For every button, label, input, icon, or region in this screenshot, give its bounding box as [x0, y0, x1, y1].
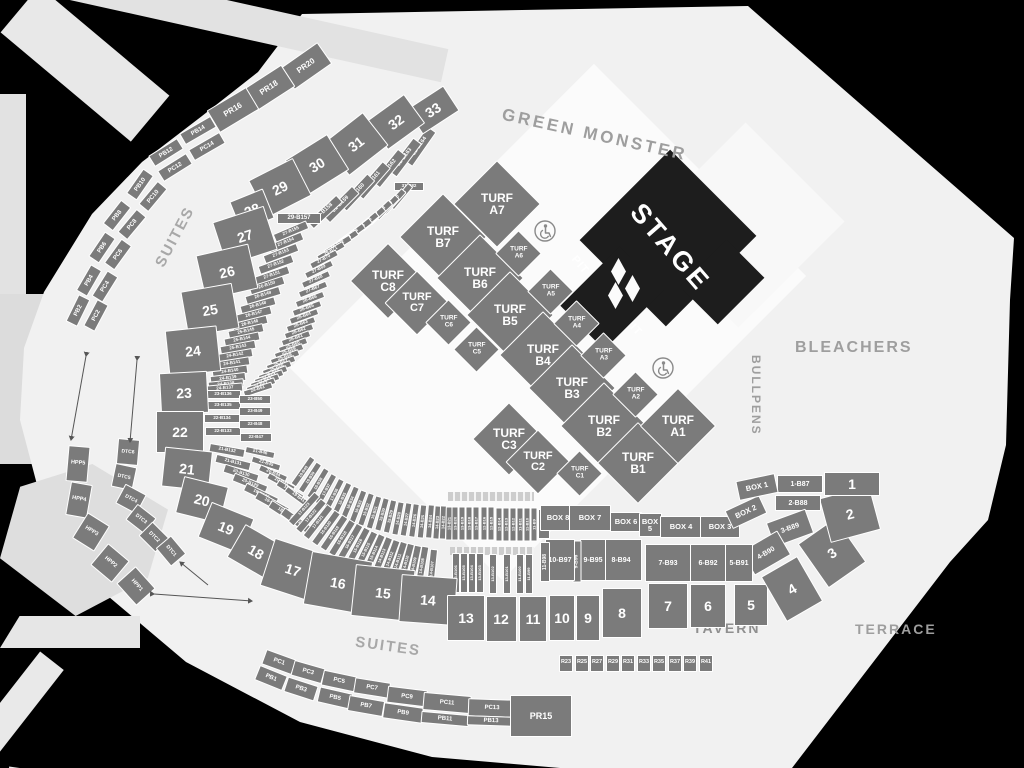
section-label: 26	[218, 263, 236, 280]
section-label: TURF A3	[590, 349, 616, 362]
section-label: PB7	[360, 702, 373, 710]
r-section-r37[interactable]: R37	[668, 655, 682, 672]
section-label: 12-B14	[497, 517, 501, 530]
box-section-box-6[interactable]: BOX 6	[610, 512, 642, 532]
section-label: TURF A2	[622, 388, 648, 401]
section-label: PR15	[530, 712, 553, 721]
section-label: 11-B100	[518, 566, 522, 581]
b-section-9-b95[interactable]: 9-B95	[580, 539, 606, 581]
row-13-b19[interactable]: 13-B19	[459, 506, 466, 540]
row-22-b133[interactable]: 22-B133	[205, 427, 241, 436]
section-label: 2	[844, 506, 855, 522]
row-11-b11[interactable]: 11-B11	[517, 507, 524, 541]
section-label: R25	[577, 660, 587, 666]
section-5[interactable]: 5	[734, 584, 768, 626]
row-13-b105[interactable]: 13-B105	[460, 553, 468, 593]
section-label: 8-B94	[611, 557, 630, 564]
section-label: PB14	[190, 124, 206, 137]
suite-pr15[interactable]: PR15	[510, 695, 572, 737]
section-label: PB6	[96, 240, 108, 253]
section-label: PC1	[272, 657, 285, 667]
row-23-b49[interactable]: 23-B49	[239, 407, 271, 416]
section-label: 15-B30	[378, 507, 385, 521]
section-label: 30	[307, 155, 328, 175]
section-label: 6-B92	[698, 560, 717, 567]
box-section-box-7[interactable]: BOX 7	[569, 505, 611, 531]
section-label: 21-B132	[218, 446, 236, 453]
section-label: 25	[201, 302, 219, 318]
section-label: PC5	[333, 677, 346, 685]
section-label: 23-B135	[214, 403, 231, 408]
section-label: HPP4	[71, 496, 86, 504]
section-label: 11-B10	[525, 518, 529, 531]
section-label: BOX 3	[709, 523, 732, 531]
section-12[interactable]: 12	[486, 596, 517, 642]
section-label: TURF B2	[581, 414, 627, 438]
section-label: 13-B19	[460, 516, 464, 529]
section-label: PC8	[126, 218, 138, 231]
section-label: BOX 8	[547, 514, 570, 522]
section-label: PC9	[401, 692, 413, 699]
box-section-box-5[interactable]: BOX 5	[639, 513, 662, 537]
section-label: 13-B17	[474, 516, 478, 529]
row-22-b134[interactable]: 22-B134	[204, 414, 240, 423]
r-section-r23[interactable]: R23	[559, 655, 573, 672]
section-label: TURF C6	[435, 316, 461, 329]
section-label: 9-B96	[575, 554, 580, 568]
section-label: BOX 6	[615, 518, 638, 526]
section-label: 20	[193, 491, 212, 508]
section-label: 11	[526, 612, 541, 626]
section-label: 9	[584, 611, 592, 625]
section-label: PB9	[397, 709, 409, 717]
b-section-5-b91[interactable]: 5-B91	[725, 544, 753, 582]
row-13-b20[interactable]: 13-B20	[452, 506, 459, 540]
section-label: TURF B1	[615, 451, 661, 475]
section-label: PR20	[296, 57, 317, 75]
section-label: 23	[176, 386, 192, 401]
section-label: 8	[618, 606, 626, 620]
section-label: 12-B12	[511, 517, 515, 530]
row-22-b48[interactable]: 22-B48	[239, 420, 271, 429]
row-11-b99[interactable]: 11-B99	[525, 554, 533, 594]
section-label: 15-B29	[387, 509, 394, 523]
section-label: PC6	[112, 248, 124, 261]
row-13-b18[interactable]: 13-B18	[466, 506, 473, 540]
section-22[interactable]: 22	[156, 411, 204, 453]
sections-layer: 32-B16432-B16331-B16231-B16131-B16031-B1…	[0, 0, 1024, 768]
section-label: 22-B134	[213, 416, 230, 421]
section-label: 13-B103	[478, 565, 482, 580]
section-label: 12-B16	[482, 516, 486, 529]
r-section-r41[interactable]: R41	[699, 655, 713, 672]
section-label: PB4	[83, 273, 94, 286]
section-label: PC7	[366, 684, 378, 692]
section-label: 18	[246, 542, 266, 562]
section-label: PB10	[133, 176, 147, 192]
section-label: PC2	[91, 308, 102, 321]
section-label: HPP2	[103, 556, 118, 569]
row-13-b103[interactable]: 13-B103	[476, 553, 484, 593]
section-11[interactable]: 11	[519, 596, 547, 642]
section-7[interactable]: 7	[648, 583, 688, 629]
box-section-box-2[interactable]: BOX 2	[725, 495, 768, 529]
section-label: 10-B97	[549, 557, 572, 564]
section-label: R41	[701, 660, 711, 666]
r-section-r35[interactable]: R35	[652, 655, 666, 672]
section-23[interactable]: 23	[159, 371, 209, 415]
b-section-8-b94[interactable]: 8-B94	[600, 539, 642, 581]
section-label: 11-B99	[527, 568, 531, 581]
section-label: DTC4	[124, 494, 138, 505]
section-label: PC11	[439, 699, 454, 706]
section-label: 23-B136	[214, 392, 231, 397]
section-label: TURF C7	[395, 292, 439, 314]
row-12-b16[interactable]: 12-B16	[481, 506, 488, 540]
section-6[interactable]: 6	[690, 584, 726, 628]
section-label: BOX 2	[734, 504, 758, 520]
section-label: DTC5	[117, 473, 131, 481]
section-label: 13-B101	[505, 566, 509, 581]
section-label: PB8	[111, 209, 123, 222]
section-label: 13-B105	[462, 565, 466, 580]
section-label: BOX 7	[579, 514, 602, 522]
section-label: TURF A4	[563, 317, 589, 330]
section-label: 12	[493, 612, 509, 626]
section-8[interactable]: 8	[602, 588, 642, 638]
section-label: PB3	[295, 684, 308, 693]
box-section-box-4[interactable]: BOX 4	[660, 516, 702, 538]
section-label: 11-B11	[518, 518, 522, 531]
section-label: TURF A1	[655, 414, 701, 438]
section-label: 31	[346, 134, 367, 155]
section-label: 10	[554, 611, 570, 625]
section-label: 32	[386, 112, 407, 132]
r-section-r33[interactable]: R33	[637, 655, 651, 672]
section-9[interactable]: 9	[576, 595, 600, 641]
section-label: 33	[423, 100, 444, 120]
section-label: DTC6	[121, 449, 134, 455]
r-section-r27[interactable]: R27	[590, 655, 604, 672]
section-label: 12-B13	[504, 517, 508, 530]
r-section-r25[interactable]: R25	[575, 655, 589, 672]
row-23-b50[interactable]: 23-B50	[239, 395, 271, 404]
section-label: TURF A7	[474, 192, 520, 216]
section-label: 13-B102	[491, 566, 495, 581]
section-label: PC10	[146, 188, 160, 203]
section-label: 7	[664, 599, 672, 613]
section-label: 17	[283, 561, 302, 579]
section-label: R33	[639, 660, 649, 666]
b-section-1-b87[interactable]: 1-B87	[777, 475, 823, 493]
section-label: 3	[825, 545, 839, 561]
row-12-b14[interactable]: 12-B14	[496, 507, 503, 541]
section-label: 6	[704, 599, 712, 613]
row-13-b101[interactable]: 13-B101	[503, 554, 511, 594]
section-label: TURF C5	[463, 343, 489, 356]
row-21-b46[interactable]: 21-B46	[245, 445, 276, 458]
section-label: 2-B88	[788, 500, 807, 507]
section-24[interactable]: 24	[165, 325, 222, 376]
section-label: TURF C2	[516, 451, 560, 473]
section-13[interactable]: 13	[447, 595, 485, 641]
section-label: R37	[670, 660, 680, 666]
section-label: 12-B15	[489, 516, 493, 529]
section-label: 16	[329, 575, 347, 591]
section-1[interactable]: 1	[824, 472, 880, 496]
section-label: R39	[685, 660, 695, 666]
section-label: 5-B91	[729, 560, 748, 567]
section-label: TURF B5	[487, 303, 533, 327]
section-label: PC13	[484, 705, 499, 712]
section-label: PB1	[264, 673, 277, 683]
section-label: 14-B24	[427, 514, 432, 527]
row-12-b13[interactable]: 12-B13	[503, 507, 510, 541]
section-label: 23-B49	[248, 409, 263, 414]
section-label: 14-B25	[419, 514, 424, 527]
row-21-b132[interactable]: 21-B132	[208, 442, 245, 457]
r-section-r39[interactable]: R39	[683, 655, 697, 672]
suite-hpp3[interactable]: HPP3	[72, 512, 110, 551]
section-label: 24	[185, 343, 202, 359]
section-label: 14-B28	[395, 511, 401, 525]
section-label: HPP1	[129, 579, 143, 593]
section-label: DTC3	[134, 513, 147, 525]
section-label: 22-B47	[249, 435, 264, 440]
row-12-b15[interactable]: 12-B15	[488, 506, 495, 540]
b-section-2-b88[interactable]: 2-B88	[775, 495, 821, 511]
b-section-11-b98[interactable]: 11-B98	[540, 542, 550, 582]
section-label: HPP3	[83, 526, 98, 538]
section-label: BOX 5	[640, 518, 661, 533]
section-label: 13-B18	[467, 516, 471, 529]
suite-pb13[interactable]: PB13	[467, 715, 515, 727]
section-label: 29-B157	[287, 215, 310, 221]
section-label: BOX 4	[670, 523, 693, 531]
section-label: 15	[375, 585, 392, 601]
suite-dtc6[interactable]: DTC6	[116, 438, 140, 466]
section-label: PC12	[167, 160, 183, 173]
suite-pb7[interactable]: PB7	[347, 695, 385, 717]
section-label: TURF B7	[420, 225, 466, 249]
seating-map: MIX PIT PIT STAGE GREEN MONSTER BLEACHER…	[0, 0, 1024, 768]
section-label: BOX 1	[745, 481, 769, 493]
section-label: 11-B98	[543, 554, 548, 570]
section-label: TURF A6	[505, 247, 531, 260]
suite-pc7[interactable]: PC7	[353, 677, 391, 698]
section-label: 14	[420, 592, 437, 607]
section-label: DTC1	[165, 544, 177, 557]
section-label: R29	[608, 660, 618, 666]
section-label: 13-B20	[453, 516, 457, 529]
section-label: 7-B93	[658, 560, 677, 567]
section-label: PC3	[302, 668, 315, 677]
section-label: TURF C1	[566, 467, 592, 480]
row-23-b135[interactable]: 23-B135	[205, 401, 241, 410]
section-label: R31	[623, 660, 633, 666]
section-label: 14-B27	[403, 512, 409, 526]
section-label: 22-B133	[214, 429, 231, 434]
suite-hpp5[interactable]: HPP5	[65, 445, 90, 483]
section-label: 13-B104	[470, 565, 474, 580]
row-11-b10[interactable]: 11-B10	[524, 507, 531, 541]
section-label: PR18	[258, 79, 279, 97]
b-section-6-b92[interactable]: 6-B92	[690, 544, 726, 582]
section-label: 11-B9	[532, 519, 536, 530]
row-22-b47[interactable]: 22-B47	[240, 433, 272, 442]
section-label: TURF A5	[537, 285, 563, 298]
r-section-r29[interactable]: R29	[606, 655, 620, 672]
section-10[interactable]: 10	[549, 595, 575, 641]
r-section-r31[interactable]: R31	[621, 655, 635, 672]
row-11-b100[interactable]: 11-B100	[516, 554, 524, 594]
section-label: R27	[592, 660, 602, 666]
section-label: 9-B95	[583, 557, 602, 564]
section-label: 3-B89	[780, 521, 800, 534]
section-label: PB5	[329, 694, 342, 702]
row-13-b104[interactable]: 13-B104	[468, 553, 476, 593]
section-label: 19	[216, 519, 236, 538]
section-label: 22	[172, 425, 188, 439]
section-label: 22-B48	[248, 422, 263, 427]
section-label: 1	[848, 477, 856, 491]
section-label: 21	[179, 461, 196, 477]
section-label: PB2	[73, 303, 84, 316]
section-label: HPP5	[71, 461, 86, 468]
section-label: 14-B108	[419, 558, 426, 574]
section-label: R23	[561, 660, 571, 666]
section-label: 27	[235, 227, 254, 245]
section-label: 1-B87	[790, 481, 809, 488]
section-label: 4	[785, 581, 799, 597]
row-23-b136[interactable]: 23-B136	[205, 390, 241, 399]
section-label: PC4	[99, 279, 110, 292]
section-label: 5	[747, 598, 755, 612]
section-label: PB12	[158, 145, 174, 158]
section-label: PB13	[483, 718, 498, 725]
suite-hpp1[interactable]: HPP1	[116, 566, 155, 606]
section-label: PC14	[199, 140, 215, 153]
section-label: 13-B21	[447, 516, 451, 529]
section-label: 4-B90	[756, 545, 776, 561]
row-11-b9[interactable]: 11-B9	[531, 507, 538, 541]
row-13-b102[interactable]: 13-B102	[489, 554, 497, 594]
section-label: R35	[654, 660, 664, 666]
row-13-b17[interactable]: 13-B17	[473, 506, 480, 540]
section-label: PB11	[437, 715, 452, 722]
section-label: 14-B107	[429, 561, 435, 577]
b-section-7-b93[interactable]: 7-B93	[645, 544, 691, 582]
section-label: 23-B50	[248, 397, 263, 402]
section-label: 13	[458, 611, 474, 625]
row-12-b12[interactable]: 12-B12	[510, 507, 517, 541]
section-label: 29	[270, 178, 290, 198]
section-label: 14-B26	[411, 513, 417, 527]
box-section-box-1[interactable]: BOX 1	[735, 473, 778, 501]
section-label: DTC2	[148, 531, 161, 544]
section-label: PR16	[222, 101, 243, 118]
section-label: 21-B46	[252, 448, 267, 455]
